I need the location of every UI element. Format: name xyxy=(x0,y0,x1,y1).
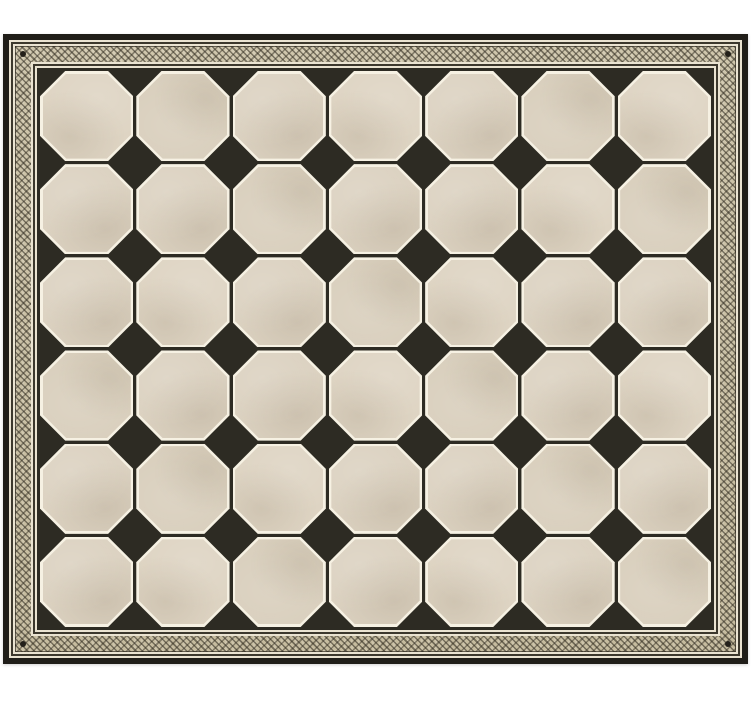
octagon-tile xyxy=(40,444,133,534)
octagon-tile xyxy=(233,164,326,254)
octagon-tile xyxy=(40,257,133,347)
frame-pinstripe-dark-2 xyxy=(33,64,718,634)
octagon-tile xyxy=(233,71,326,161)
frame-pinstripe-dark-1 xyxy=(11,42,740,656)
octagon-tile xyxy=(233,537,326,627)
octagon-tile xyxy=(136,537,229,627)
octagon-tile xyxy=(521,164,614,254)
octagon-tile xyxy=(40,164,133,254)
octagon-tile xyxy=(618,350,711,440)
octagon-tile xyxy=(521,350,614,440)
tile-field xyxy=(37,68,714,630)
ornament-corner-dot-icon xyxy=(20,641,26,647)
frame-pinstripe-light-1 xyxy=(9,40,742,658)
ornament-corner-dot-icon xyxy=(725,641,731,647)
product-photo xyxy=(0,0,752,703)
ornament-corner-dot-icon xyxy=(20,51,26,57)
octagon-tile xyxy=(233,257,326,347)
octagon-tile xyxy=(521,537,614,627)
octagon-tile xyxy=(521,257,614,347)
octagon-tile xyxy=(329,444,422,534)
octagon-tile xyxy=(233,350,326,440)
octagon-tile xyxy=(40,71,133,161)
octagon-tile xyxy=(136,444,229,534)
octagon-tile xyxy=(329,350,422,440)
frame-pinstripe-light-3 xyxy=(31,62,720,636)
octagon-tile xyxy=(136,350,229,440)
octagon-tile xyxy=(618,444,711,534)
octagon-tile xyxy=(618,164,711,254)
frame-outer-band xyxy=(3,34,748,664)
octagon-tile xyxy=(521,71,614,161)
octagon-tile xyxy=(329,164,422,254)
octagon-tile xyxy=(136,164,229,254)
octagon-tile xyxy=(425,164,518,254)
octagon-tile xyxy=(329,537,422,627)
frame-pinstripe-light-4 xyxy=(35,66,716,632)
octagon-tile xyxy=(521,444,614,534)
octagon-tile xyxy=(425,350,518,440)
frame-ornament-band xyxy=(15,46,736,652)
ornament-corner-dot-icon xyxy=(725,51,731,57)
octagon-tile xyxy=(233,444,326,534)
octagon-tile xyxy=(618,257,711,347)
octagon-tile xyxy=(425,257,518,347)
octagon-tile xyxy=(618,71,711,161)
octagon-tile xyxy=(40,350,133,440)
octagon-tile xyxy=(136,257,229,347)
octagon-tile xyxy=(40,537,133,627)
octagon-tile xyxy=(329,257,422,347)
frame-pinstripe-light-2 xyxy=(13,44,738,654)
octagon-tile xyxy=(425,444,518,534)
tile-mat xyxy=(3,34,748,664)
tile-grid xyxy=(40,71,711,627)
octagon-tile xyxy=(425,537,518,627)
octagon-tile xyxy=(329,71,422,161)
octagon-tile xyxy=(425,71,518,161)
octagon-tile xyxy=(136,71,229,161)
octagon-tile xyxy=(618,537,711,627)
